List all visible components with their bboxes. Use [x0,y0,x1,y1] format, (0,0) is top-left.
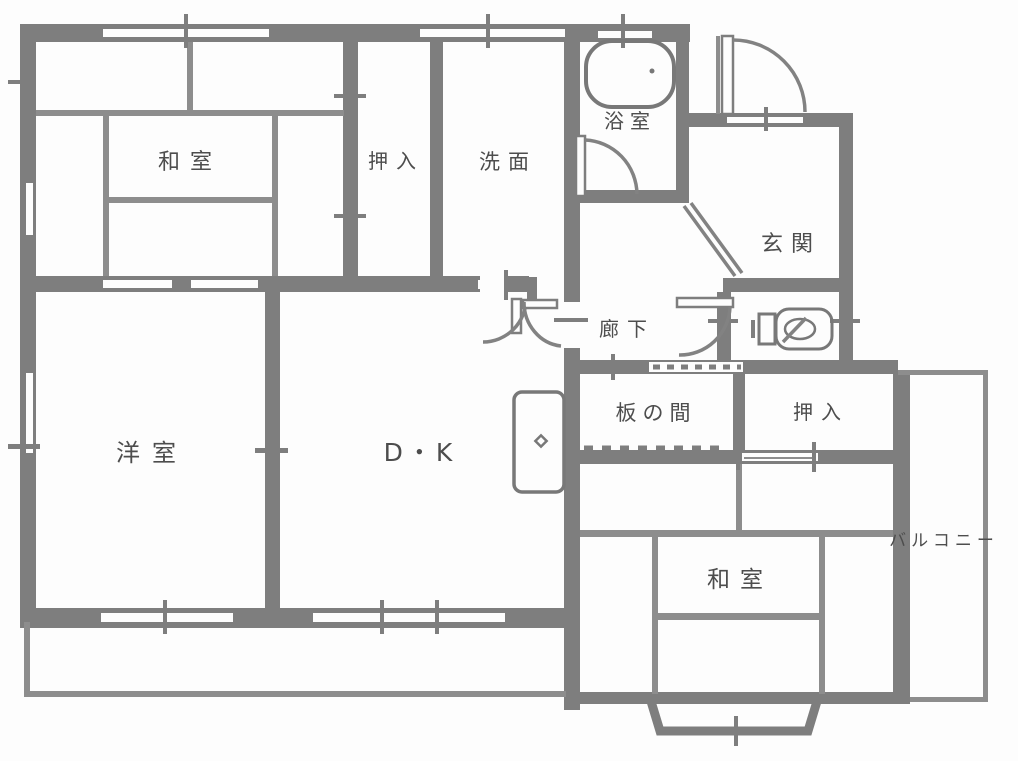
sliding-door-tick [99,278,103,290]
window-tick [486,14,490,48]
room-label-oshiire-east: 押入 [793,400,849,424]
room-labels: 和室 押入 洗面 浴室 玄関 廊下 板の間 押入 和室 洋室 D・K バルコニー [116,109,999,593]
tatami-line [652,537,658,694]
balcony-rail [910,697,988,702]
bath-door-arc [585,140,637,194]
sliding-door-tick [172,278,176,290]
entrance-door-panel [722,36,733,114]
wall-segment [723,278,853,292]
opening-tick [736,444,740,470]
tatami-line [736,464,742,530]
threshold-tick [764,107,768,131]
genkan-step-line [691,203,742,273]
tatami-line [580,530,893,537]
hall-door-panel [677,298,733,307]
closet-door-tick [334,94,366,98]
window-tick [184,14,188,48]
opening-tick [611,354,615,380]
tatami-line [187,42,193,110]
window [420,29,565,37]
toilet-handle [751,320,755,338]
room-label-youshitsu: 洋室 [116,439,188,467]
opening-tick [255,448,288,453]
room-label-dk: D・K [384,438,457,467]
room-label-washitsu-se: 和室 [707,567,773,593]
opening [564,302,580,348]
tatami-line [36,110,344,116]
wall-segment [20,24,36,628]
closet-door-tick [334,214,366,218]
bay-window-tick [734,716,738,746]
opening-tick [708,319,738,323]
balcony-rail [24,622,30,696]
sliding-door-tick [187,278,191,290]
tatami-line [819,537,825,694]
opening-tick [504,270,508,300]
opening-tick [830,319,860,323]
window-tick [8,444,40,449]
window-tick [163,600,167,634]
dk-door-panel [523,300,557,308]
window-tick [435,600,439,634]
room-label-itanoma: 板の間 [616,401,697,425]
opening-tick [554,318,588,322]
balcony-rail [898,370,988,375]
wall-segment [507,276,529,292]
sliding-door [188,280,258,288]
genkan-step-line [684,206,735,276]
room-label-rouka: 廊下 [599,317,655,341]
walls [20,24,910,710]
sink-faucet [535,435,546,446]
room-label-oshiire-north: 押入 [368,149,424,173]
wall-segment [839,113,853,374]
bathtub-drain [650,69,655,74]
door-frame [716,36,720,114]
floor-plan-page: 和室 押入 洗面 浴室 玄関 廊下 板の間 押入 和室 洋室 D・K バルコニー [0,0,1018,761]
opening-tick [812,442,816,472]
tatami-line [103,116,109,276]
room-label-genkan: 玄関 [761,232,821,257]
room-label-washitsu-nw: 和室 [158,150,222,175]
room-label-balcony: バルコニー [889,531,999,551]
bath-door-panel [576,136,585,196]
opening-line [744,457,816,459]
toilet-icon [759,314,775,344]
sliding-door [101,280,175,288]
entrance-door-arc [733,40,805,112]
tatami-line [109,197,272,203]
wall-segment [430,28,443,288]
tatami-line [658,613,819,620]
tatami-line [272,116,278,276]
window [26,373,33,453]
kitchen-sink-icon [514,392,564,492]
wall-segment [343,28,358,288]
opening [537,277,564,292]
wall-segment [733,366,745,456]
window-tick [380,600,384,634]
floor-plan-drawing: 和室 押入 洗面 浴室 玄関 廊下 板の間 押入 和室 洋室 D・K バルコニー [0,0,1018,761]
bathtub-icon [586,41,674,107]
window [26,183,33,235]
room-label-senmen: 洗面 [479,150,537,174]
wall-segment [564,692,910,704]
window-tick [8,80,36,84]
opening [478,280,506,289]
window [313,613,505,622]
balcony-rail [24,691,566,697]
room-label-yokushitsu: 浴室 [604,109,656,133]
